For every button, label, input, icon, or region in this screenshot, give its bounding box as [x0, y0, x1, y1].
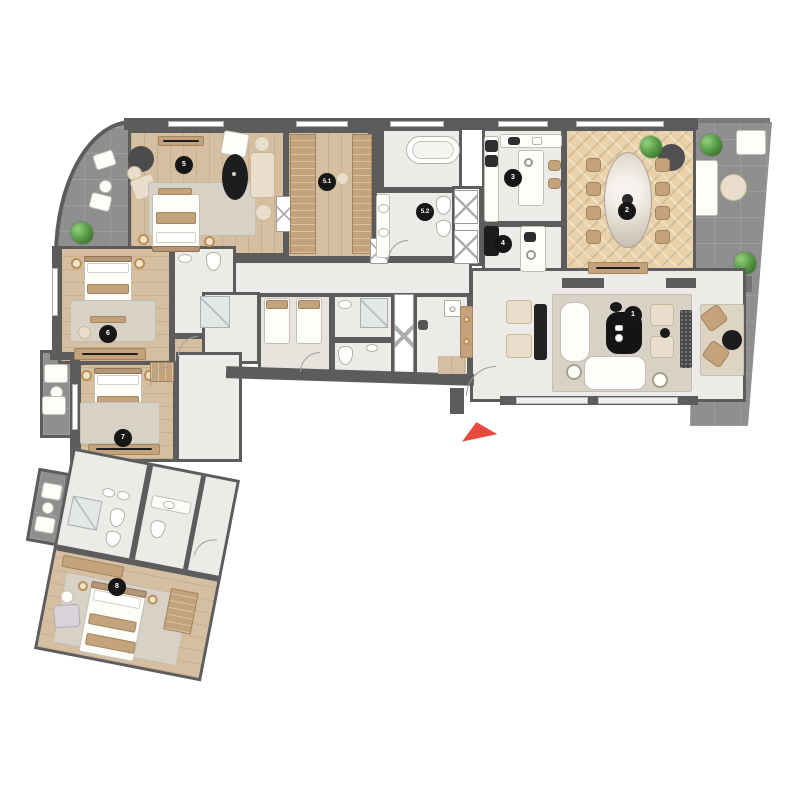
- nightstand-icon: [204, 236, 215, 247]
- wall-corridor-north: [236, 256, 456, 262]
- dining-chair-icon: [655, 182, 670, 196]
- chaise-icon: [560, 302, 590, 362]
- armchair-icon: [650, 304, 674, 326]
- dining-chair-icon: [586, 158, 601, 172]
- window: [296, 121, 348, 127]
- cabinet-gold-knobs: [460, 306, 473, 358]
- shower-icon: [360, 298, 388, 328]
- bathtub-inner: [412, 141, 454, 159]
- bed-blanket: [156, 212, 196, 224]
- room-badge-kitchen: 3: [504, 169, 522, 187]
- bathtub-black-icon: [222, 154, 248, 200]
- plant-icon: [640, 136, 662, 158]
- bed-pillow: [266, 300, 288, 309]
- room-badge-bedroom6: 6: [99, 325, 117, 343]
- dining-chair-icon: [586, 230, 601, 244]
- bed-pillows: [87, 263, 129, 273]
- dining-chair-icon: [655, 206, 670, 220]
- bed-bench: [158, 188, 192, 195]
- room-badge-dining: 2: [618, 202, 636, 220]
- console-decor: [596, 267, 640, 269]
- sink-icon: [532, 137, 542, 145]
- pouf-icon: [254, 136, 270, 152]
- floor-mat: [438, 356, 466, 374]
- headboard: [84, 256, 132, 262]
- bed-blanket: [87, 284, 129, 294]
- window: [576, 121, 664, 127]
- sofa-icon: [250, 152, 275, 198]
- dining-chair-icon: [655, 158, 670, 172]
- room-badge-scullery: 4: [494, 235, 512, 253]
- bed-pillows: [156, 232, 196, 243]
- knob-icon: [463, 316, 470, 323]
- room-badge-bedroom8: 8: [108, 578, 126, 596]
- sink-icon: [378, 228, 389, 237]
- tub-sparkle: [232, 172, 236, 176]
- dining-chair-icon: [655, 230, 670, 244]
- outdoor-chair-icon: [34, 515, 56, 534]
- armchair-icon: [53, 604, 81, 629]
- console-decor: [96, 448, 152, 450]
- headboard: [152, 246, 200, 252]
- plant-icon: [700, 134, 722, 156]
- sliding-door: [598, 397, 678, 404]
- pouf-icon: [255, 204, 272, 221]
- bed-bench: [90, 316, 126, 323]
- appliance-icon: [418, 320, 428, 330]
- armchair-icon: [506, 300, 532, 324]
- shower-icon: [200, 296, 230, 328]
- nightstand-icon: [71, 258, 82, 269]
- console-decor: [82, 353, 138, 355]
- wardrobe-icon: [290, 134, 316, 254]
- window: [168, 121, 224, 127]
- sliding-door: [516, 397, 588, 404]
- room-badge-master: 5: [175, 156, 193, 174]
- nightstand-icon: [138, 234, 149, 245]
- outdoor-table-icon: [720, 174, 747, 201]
- shower-icon: [67, 496, 102, 531]
- side-table-icon: [660, 328, 670, 338]
- closet-door: [454, 190, 478, 224]
- headboard: [94, 368, 142, 374]
- wall-entry-stub: [450, 388, 464, 414]
- entrance-arrow-icon: [459, 418, 498, 441]
- dining-chair-icon: [586, 206, 601, 220]
- oven-icon: [485, 155, 498, 167]
- appliance-icon: [524, 232, 536, 242]
- room-badge-masterbath: 5.2: [416, 203, 434, 221]
- sofa-icon: [584, 356, 646, 390]
- knob-icon: [463, 338, 470, 345]
- credenza-icon: [680, 310, 692, 368]
- corridor-main: [232, 260, 472, 296]
- window: [72, 384, 78, 430]
- washer-icon: [444, 300, 461, 317]
- window: [498, 121, 548, 127]
- table-tray: [615, 334, 623, 342]
- sink-icon: [178, 254, 192, 263]
- scullery-sink: [526, 250, 536, 260]
- closet-shaft: [394, 294, 414, 378]
- side-table-icon: [99, 180, 112, 193]
- pouf-icon: [78, 326, 91, 339]
- terrace-rail: [688, 118, 770, 123]
- stool-icon: [336, 172, 349, 185]
- room-badge-dressing: 5.1: [318, 173, 336, 191]
- island-sink: [524, 158, 533, 167]
- sink-icon: [338, 300, 352, 309]
- outdoor-chair-icon: [41, 482, 63, 501]
- nightstand-icon: [134, 258, 145, 269]
- dining-chair-icon: [586, 182, 601, 196]
- table-decor: [610, 302, 622, 312]
- bed-pillows: [97, 375, 139, 385]
- spool-table-icon: [652, 372, 668, 388]
- side-console-icon: [534, 304, 547, 360]
- floor-plan: 1 2 3 4 5 5.1 5.2 6 7 8: [0, 0, 800, 800]
- wall-dining-living: [562, 278, 604, 288]
- sink-icon: [366, 344, 378, 352]
- outdoor-table-icon: [41, 501, 55, 515]
- bed-pillow: [298, 300, 320, 309]
- stool-icon: [548, 160, 561, 171]
- outdoor-chair-icon: [42, 396, 66, 415]
- table-tray: [615, 325, 623, 331]
- fridge-icon: [485, 140, 498, 152]
- wardrobe-icon: [352, 134, 372, 254]
- cooktop-icon: [508, 137, 520, 145]
- nightstand-icon: [81, 370, 92, 381]
- outdoor-sofa-icon: [694, 160, 718, 216]
- stool-icon: [548, 178, 561, 189]
- sink-icon: [378, 204, 389, 213]
- side-table-icon: [722, 330, 742, 350]
- plant-icon: [71, 222, 93, 244]
- window: [52, 268, 58, 316]
- window: [390, 121, 444, 127]
- armchair-icon: [506, 334, 532, 358]
- room-badge-bedroom7: 7: [114, 429, 132, 447]
- shelf-decor: [163, 140, 199, 142]
- daybed-icon: [736, 130, 766, 155]
- armchair-icon: [650, 336, 674, 358]
- closet-door: [454, 230, 478, 264]
- spool-table-icon: [566, 364, 582, 380]
- wall-dining-living: [666, 278, 696, 288]
- room-badge-living: 1: [624, 306, 642, 324]
- outdoor-chair-icon: [44, 364, 68, 383]
- terrace-curved-northwest: [54, 120, 132, 258]
